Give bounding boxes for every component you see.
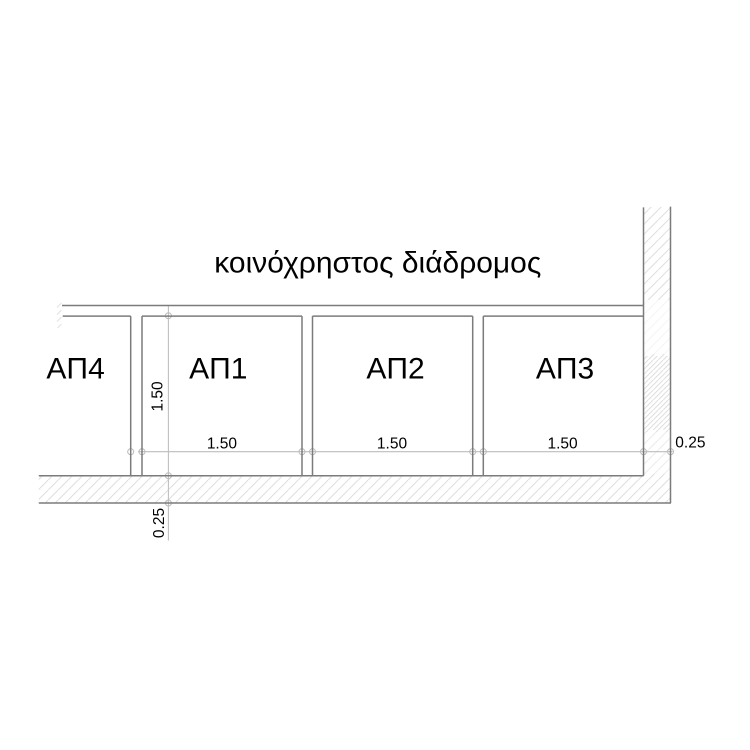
svg-text:ΑΠ4: ΑΠ4 — [46, 353, 104, 386]
svg-text:1.50: 1.50 — [207, 435, 238, 452]
svg-text:ΑΠ2: ΑΠ2 — [366, 353, 424, 386]
svg-text:ΑΠ3: ΑΠ3 — [536, 353, 594, 386]
svg-text:1.50: 1.50 — [548, 435, 579, 452]
svg-text:ΑΠ1: ΑΠ1 — [189, 353, 247, 386]
svg-text:1.50: 1.50 — [377, 435, 408, 452]
svg-text:κοινόχρηστος διάδρομος: κοινόχρηστος διάδρομος — [214, 247, 541, 280]
svg-text:0.25: 0.25 — [151, 508, 168, 538]
svg-text:0.25: 0.25 — [675, 435, 705, 452]
svg-text:1.50: 1.50 — [150, 381, 167, 412]
